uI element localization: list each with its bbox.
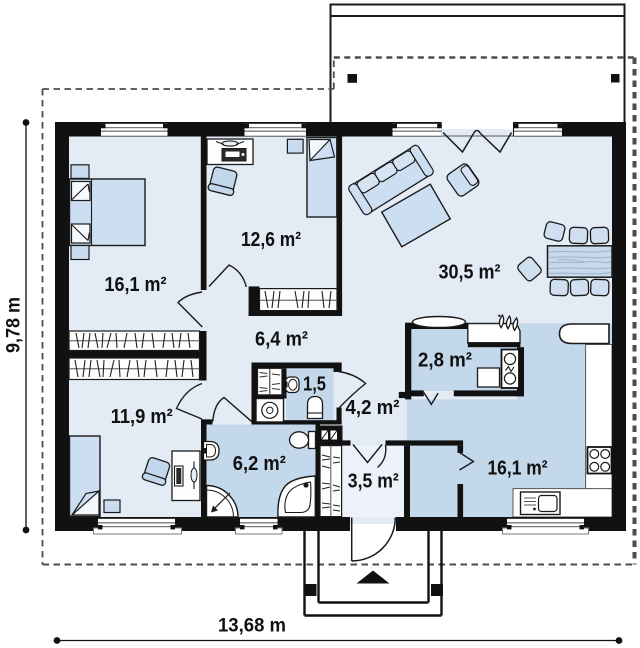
svg-text:4,2 m²: 4,2 m² [346,396,400,419]
svg-text:16,1 m²: 16,1 m² [105,273,167,296]
svg-text:30,5 m²: 30,5 m² [439,260,501,283]
svg-text:6,4 m²: 6,4 m² [255,328,308,351]
svg-text:6,2 m²: 6,2 m² [233,452,286,475]
svg-text:13,68 m: 13,68 m [218,615,286,637]
svg-text:3,5 m²: 3,5 m² [348,470,399,493]
svg-text:1,5: 1,5 [303,373,326,396]
svg-text:11,9 m²: 11,9 m² [111,405,173,428]
svg-text:12,6 m²: 12,6 m² [241,228,301,251]
svg-text:9,78 m: 9,78 m [3,297,25,353]
svg-text:2,8 m²: 2,8 m² [418,349,472,372]
svg-text:16,1 m²: 16,1 m² [488,457,548,480]
